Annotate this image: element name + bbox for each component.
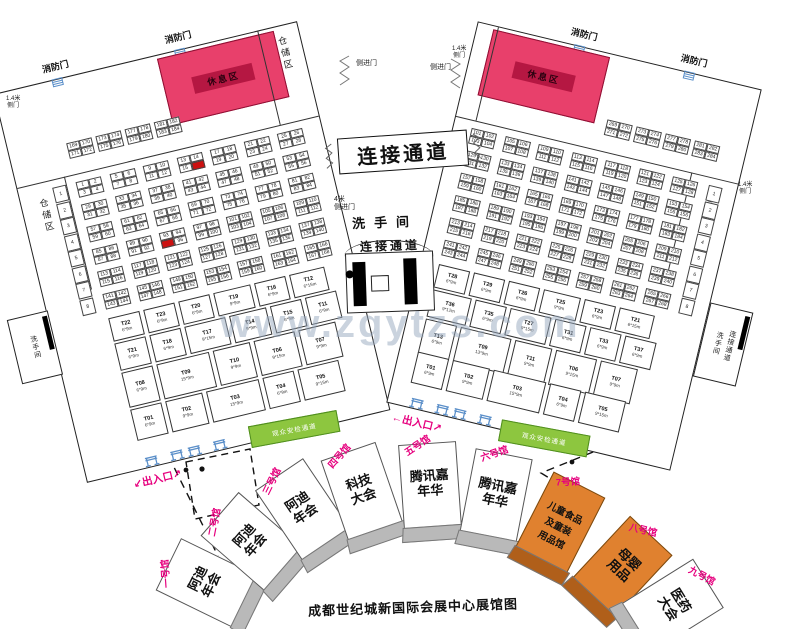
booth-cell: 36 xyxy=(129,198,144,209)
booth-cell: 96 xyxy=(173,235,188,246)
t-booth-size: 6*9m xyxy=(319,307,331,315)
fan-hall-number: 四号馆 xyxy=(324,440,353,471)
booth-cell: 200 xyxy=(565,230,580,241)
booth-cluster: 65666768 xyxy=(153,205,182,227)
entrance-gate-icon xyxy=(211,435,227,450)
booth-cell: 260 xyxy=(588,283,603,294)
accordion-door-icon xyxy=(324,143,335,172)
booth-cluster: 193194195196 xyxy=(519,211,548,233)
entrance-gate-icon xyxy=(186,441,202,456)
booth-cluster: 237238239240 xyxy=(648,266,677,288)
booth-cell: 104 xyxy=(240,219,255,230)
fan-hall-name: 腾讯嘉 年华 xyxy=(466,473,527,513)
booth-cell: 52 xyxy=(263,166,278,177)
booth-cell: 112 xyxy=(307,203,322,214)
booth-cluster: 81828384 xyxy=(288,173,317,195)
booth-cluster: 57585960 xyxy=(86,221,115,243)
booth-cluster: 149150151152 xyxy=(630,191,659,213)
annex-label: 洗手间 xyxy=(27,334,42,360)
page-title: 成都世纪城新国际会展中心展馆图 xyxy=(308,593,519,619)
booth-cell: 180 xyxy=(139,131,154,142)
booth-cell: 44 xyxy=(196,182,211,193)
rest-area: 休息区 xyxy=(478,29,611,123)
side-door-note: 1.4米 侧门 xyxy=(738,182,752,195)
booth-cell: 60 xyxy=(101,229,116,240)
booth-cell: 84 xyxy=(302,180,317,191)
booth-cluster: 177178179180 xyxy=(125,123,154,145)
booth-cluster: 21222324 xyxy=(243,136,272,158)
booth-cell: 160 xyxy=(470,183,485,194)
booth-cell: 32 xyxy=(95,206,110,217)
booth-cell: 128 xyxy=(212,249,227,260)
booth-cell: 100 xyxy=(207,227,222,238)
booth-cluster: 29303132 xyxy=(81,199,110,221)
booth-cell: 124 xyxy=(179,257,194,268)
booth-cluster: 109110111112 xyxy=(535,144,564,166)
fan-hall-number: 二号馆 xyxy=(204,507,223,538)
booth-cell: 108 xyxy=(514,147,529,158)
booth-cell: 80 xyxy=(268,188,283,199)
booth-cluster: 181182183184 xyxy=(659,221,688,243)
booth-cell: 8 xyxy=(678,297,695,316)
corridor-banner-label: 连接通道 xyxy=(356,134,450,169)
booth-cluster: 117118119120 xyxy=(602,160,631,182)
entrance-gate-icon xyxy=(477,411,493,426)
booth-cluster: 169170171172 xyxy=(558,197,587,219)
fan-hall-name: 阿迪 年会 xyxy=(179,550,231,613)
booth-cluster: 121122123124 xyxy=(636,168,665,190)
booth-cluster: 141142143144 xyxy=(563,174,592,196)
booth-cluster: 121122123124 xyxy=(164,250,193,272)
fan-hall-segment: 五号馆腾讯嘉 年华 xyxy=(398,441,462,531)
booth-cell: 204 xyxy=(599,238,614,249)
t-booth: T016*9m xyxy=(411,352,450,391)
booth-cell: 68 xyxy=(168,213,183,224)
rest-area-label: 休息区 xyxy=(512,61,575,92)
booth-cell: 128 xyxy=(682,187,697,198)
t-booth-size: 6*9m xyxy=(144,421,156,429)
hall-left: 消防门消防门仓储区仓储区休息区1234567891011121314151617… xyxy=(0,21,390,483)
booth-cell: 240 xyxy=(660,276,675,287)
t-booth: T059*15m xyxy=(297,360,345,401)
t-booth: T069*15m xyxy=(254,331,303,376)
booth-cluster: 133134135136 xyxy=(496,158,525,180)
booth-cluster: 257258259260 xyxy=(575,272,604,294)
booth-cluster: 173174175176 xyxy=(591,205,620,227)
corridor-width-note: 4米 侧进门 xyxy=(334,196,355,211)
fan-hall-segment: 六号馆腾讯嘉 年华 xyxy=(459,448,532,543)
t-booth-size: 6*9m xyxy=(561,335,573,343)
booth-cluster: 277278279280 xyxy=(662,133,691,155)
booth-cluster: 113114115116 xyxy=(97,266,126,288)
fire-door-icon xyxy=(50,73,64,85)
booth-cluster: 241242243244 xyxy=(441,240,470,262)
wall-block xyxy=(737,316,750,350)
booth-cluster: 137138139140 xyxy=(298,217,327,239)
t-booth-size: 6*9m xyxy=(482,316,494,324)
entrance-gate-icon xyxy=(409,394,425,409)
booth-cell: 208 xyxy=(632,246,647,257)
booth-cell: 164 xyxy=(503,191,518,202)
booth-cell: 48 xyxy=(230,174,245,185)
t-booth-size: 6*9m xyxy=(423,370,435,378)
booth-cell: 176 xyxy=(110,138,125,149)
t-booth-size: 6*9m xyxy=(128,353,140,361)
t-booth: T116*9m xyxy=(305,290,343,325)
booth-cluster: 165166167168 xyxy=(304,240,333,262)
booth-cell: 216 xyxy=(459,228,474,239)
booth-cell: 224 xyxy=(526,244,541,255)
booth-cell: 248 xyxy=(487,259,502,270)
booth-cluster: 281282283284 xyxy=(691,140,720,162)
booth-cluster: 265266267268 xyxy=(642,288,671,310)
t-booth-size: 6*9m xyxy=(515,295,527,303)
booth-cluster: 169170171172 xyxy=(66,137,95,159)
booth-cell: 132 xyxy=(246,241,261,252)
booth-cell: 188 xyxy=(465,206,480,217)
booth-cluster: 17181920 xyxy=(210,144,239,166)
wall-block xyxy=(403,258,418,304)
booth-cell: 56 xyxy=(297,158,312,169)
t-booth-size: 6*9m xyxy=(480,287,492,295)
booth-cell: 40 xyxy=(162,190,177,201)
booth-cell: 168 xyxy=(318,247,333,258)
booth-cluster: 33343536 xyxy=(114,191,143,213)
booth-cell: 220 xyxy=(493,236,508,247)
booth-cell: 88 xyxy=(106,251,121,262)
booth-cluster: 137138139140 xyxy=(530,166,559,188)
fan-segment-side xyxy=(609,602,655,629)
booth-cell: 120 xyxy=(145,265,160,276)
hall-right: 消防门消防门仓储区仓储区休息区1011021031041051061071081… xyxy=(386,21,761,470)
fan-hall-name: 阿迪 年会 xyxy=(270,479,333,535)
side-entry-label: 侧进门 xyxy=(356,60,377,68)
t-booth: T029*9m xyxy=(165,393,209,433)
booth-cluster: 145146147148 xyxy=(136,280,165,302)
booth-cluster: 101102103104 xyxy=(226,211,255,233)
t-booth: T046*9m xyxy=(262,371,301,410)
booth-cluster: 145146147148 xyxy=(597,182,626,204)
booth-cell: 140 xyxy=(542,177,557,188)
t-booth-size: 6*9m xyxy=(445,278,457,286)
entrance-gate-icon xyxy=(168,446,184,461)
accordion-door-icon xyxy=(338,55,352,89)
booth-cell: 256 xyxy=(554,275,569,286)
booth-cluster: 109110111112 xyxy=(293,195,322,217)
booth-cluster: 1234 xyxy=(76,176,105,198)
security-channel-banner: 观众安检通道 xyxy=(498,419,591,457)
booth-cell: 284 xyxy=(704,151,719,162)
fan-segment-side xyxy=(346,519,408,554)
booth-cell: 4 xyxy=(90,184,105,195)
booth-cluster: 77787980 xyxy=(254,181,283,203)
booth-cell: 280 xyxy=(675,144,690,155)
booth-cell: 20 xyxy=(224,152,239,163)
booth-cluster: 253254255256 xyxy=(542,264,571,286)
corridor-structure xyxy=(345,250,435,313)
fan-hall-number: 九号馆 xyxy=(686,562,718,588)
booth-cluster: 261262263264 xyxy=(609,280,638,302)
booth-cluster: 85868788 xyxy=(92,243,121,265)
booth-cell: 156 xyxy=(217,272,232,283)
booth-cell: 132 xyxy=(475,161,490,172)
entrance-gate-icon xyxy=(434,400,450,415)
t-booth-size: 9*9m xyxy=(553,304,565,312)
booth-cluster: 205206207208 xyxy=(620,235,649,257)
booth-cluster: 229230231232 xyxy=(581,250,610,272)
fan-segment-side xyxy=(561,576,618,628)
booth-cell: 172 xyxy=(81,145,96,156)
booth-cell: 268 xyxy=(655,299,670,310)
booth-cell: 76 xyxy=(235,196,250,207)
t-booth: T296*9m xyxy=(468,272,505,303)
booth-cluster: 93949596 xyxy=(159,227,188,249)
fan-hall-name: 腾讯嘉 年华 xyxy=(401,466,459,500)
booth-cell: 116 xyxy=(111,273,126,284)
fan-hall-name: 母婴 用品 xyxy=(593,535,654,595)
booth-cluster: 13141516 xyxy=(176,152,205,174)
booth-cluster: 105106107108 xyxy=(502,136,531,158)
restroom-annex: 洗手间 xyxy=(7,310,63,384)
booth-cluster: 221222223224 xyxy=(514,233,543,255)
booth-cell: 116 xyxy=(581,163,596,174)
booth-cell: 196 xyxy=(532,222,547,233)
booth-cell: 12 xyxy=(157,168,172,179)
booth-cluster: 41424344 xyxy=(182,174,211,196)
t-booth-size: 6*9m xyxy=(121,325,133,333)
booth-cluster: 165166167168 xyxy=(524,189,553,211)
booth-cell: 264 xyxy=(622,291,637,302)
booth-cluster: 181182183184 xyxy=(154,116,183,138)
booth-cell: 180 xyxy=(638,224,653,235)
fan-hall-number: 7号馆 xyxy=(555,473,580,488)
booth-cell: 152 xyxy=(643,201,658,212)
t-booth-size: 9*9m xyxy=(523,361,535,369)
booth-cell: 136 xyxy=(279,233,294,244)
booth-cell: 112 xyxy=(548,155,563,166)
booth-cluster: 173174175176 xyxy=(95,130,124,152)
side-entry-label: 侧进门 xyxy=(430,64,451,72)
fan-hall-name: 医药 大会 xyxy=(647,573,702,629)
booth-cell: 72 xyxy=(201,205,216,216)
wall-notch xyxy=(371,275,390,292)
t-booth-size: 6*9m xyxy=(163,344,175,352)
entrance-gate-icon xyxy=(143,452,159,467)
booth-cluster: 225226227228 xyxy=(547,241,576,263)
t-booth-size: 6*9m xyxy=(631,352,643,360)
booth-cluster: 113114115116 xyxy=(569,152,598,174)
booth-cell: 192 xyxy=(498,214,513,225)
booth-cluster: 105106107108 xyxy=(259,203,288,225)
booth-cell: 164 xyxy=(285,256,300,267)
booth-cluster: 217218219220 xyxy=(480,225,509,247)
booth-cluster: 189190191192 xyxy=(485,203,514,225)
booth-cell: 8 xyxy=(124,176,139,187)
booth-cell: 144 xyxy=(576,185,591,196)
wall-block xyxy=(42,316,55,350)
booth-cluster: 149150151152 xyxy=(169,272,198,294)
t-booth-size: 6*9m xyxy=(431,339,443,347)
booth-cluster: 201202203204 xyxy=(586,227,615,249)
t-booth-size: 9*9m xyxy=(230,363,242,371)
booth-cluster: 141142143144 xyxy=(102,288,131,310)
booth-cell: 24 xyxy=(258,144,273,155)
t-booth-size: 6*9m xyxy=(556,402,568,410)
booth-cell: 244 xyxy=(454,251,469,262)
fan-hall-name: 儿童食品 及童装 用品馆 xyxy=(523,494,593,560)
t-booth: T109*9m xyxy=(213,342,258,386)
booth-cluster: 153154155156 xyxy=(664,199,693,221)
t-booth-size: 6*9m xyxy=(591,313,603,321)
booth-cluster: 209210211212 xyxy=(653,243,682,265)
booth-cluster: 9101112 xyxy=(143,160,172,182)
booth-cluster: 197198199200 xyxy=(553,219,582,241)
t-booth-size: 9*9m xyxy=(229,299,241,307)
booth-cell: 236 xyxy=(627,268,642,279)
t-booth: T336*9m xyxy=(584,327,622,362)
floor-plan: 消防门消防门仓储区仓储区休息区1234567891011121314151617… xyxy=(0,0,800,629)
fan-hall-number: 八号馆 xyxy=(628,519,659,539)
booth-cell: 140 xyxy=(313,225,328,236)
booth-cell: 28 xyxy=(291,136,306,147)
booth-cell: 176 xyxy=(604,216,619,227)
booth-cell: 64 xyxy=(134,221,149,232)
t-booth-size: 6*9m xyxy=(191,309,203,317)
booth-cell: 148 xyxy=(150,288,165,299)
t-booth-size: 6*9m xyxy=(277,389,289,397)
booth-cluster: 161162163164 xyxy=(491,181,520,203)
booth-cell: 120 xyxy=(615,171,630,182)
booth-cell: 232 xyxy=(593,260,608,271)
restroom-annex: 洗手间连接通道 xyxy=(693,302,754,386)
booth-cluster: 177178179180 xyxy=(625,213,654,235)
booth-cluster: 979899100 xyxy=(192,219,221,241)
t-booth-size: 6*9m xyxy=(136,386,148,394)
booth-cell: 212 xyxy=(666,254,681,265)
booth-cluster: 273274275276 xyxy=(633,126,662,148)
booth-cluster: 269270271272 xyxy=(604,119,633,141)
booth-cell: 168 xyxy=(537,200,552,211)
booth-cluster: 49505152 xyxy=(249,158,278,180)
booth-cell: 16 xyxy=(191,160,206,171)
t-booth-size: 9*9m xyxy=(461,379,473,387)
booth-cell: 276 xyxy=(646,137,661,148)
t-booth: T079*9m xyxy=(298,321,343,365)
booth-cluster: 245246247248 xyxy=(475,248,504,270)
booth-cluster: 133134135136 xyxy=(265,225,294,247)
fire-door-icon xyxy=(683,66,697,78)
side-door-note: 1.4米 侧门 xyxy=(452,46,466,59)
booth-cluster: 25262728 xyxy=(277,128,306,150)
booth-cluster: 53545556 xyxy=(282,150,311,172)
t-booth-size: 9*9m xyxy=(246,324,258,332)
booth-cluster: 161162163164 xyxy=(270,248,299,270)
t-booth-size: 9*9m xyxy=(316,342,328,350)
fan-hall-number: 一号馆 xyxy=(157,559,173,588)
t-booth: T086*9m xyxy=(121,365,161,407)
t-booth-size: 6*9m xyxy=(267,290,279,298)
t-booth: T016*9m xyxy=(130,402,169,441)
t-booth: T376*9m xyxy=(619,336,657,371)
storage-area-label: 仓储区 xyxy=(37,197,58,235)
t-booth: T046*9m xyxy=(543,383,582,422)
booth-cluster: 73747576 xyxy=(220,189,249,211)
booth-cluster: 157158159160 xyxy=(237,256,266,278)
booth-cell: 172 xyxy=(571,208,586,219)
fan-hall-name: 科技 大会 xyxy=(330,466,393,513)
booth-cluster: 129130131132 xyxy=(231,233,260,255)
booth-cluster: 45464748 xyxy=(215,166,244,188)
booth-cell: 124 xyxy=(648,179,663,190)
t-booth: T356*9m xyxy=(469,300,507,335)
wall-block xyxy=(352,262,367,306)
side-door-note: 1.4米 侧门 xyxy=(6,96,20,109)
booth-cell: 184 xyxy=(168,124,183,135)
fan-hall-number: 六号馆 xyxy=(478,442,510,465)
booth-cluster: 157158159160 xyxy=(457,173,486,195)
t-booth-size: 9*9m xyxy=(609,381,621,389)
fan-hall-number: 三号馆 xyxy=(259,465,284,497)
booth-cluster: 233234235236 xyxy=(614,258,643,280)
booth-cluster: 125126127128 xyxy=(198,241,227,263)
booth-cell: 136 xyxy=(509,169,524,180)
booth-cell: 272 xyxy=(616,130,631,141)
rest-area-label: 休息区 xyxy=(192,63,255,94)
booth-cell: 108 xyxy=(274,211,289,222)
booth-cluster: 61626364 xyxy=(120,213,149,235)
booth-cell: 92 xyxy=(140,243,155,254)
booth-cluster: 69707172 xyxy=(187,197,216,219)
booth-cluster: 89909192 xyxy=(125,235,154,257)
booth-cluster: 185186187188 xyxy=(452,195,481,217)
booth-cell: 148 xyxy=(609,193,624,204)
booth-cluster: 117118119120 xyxy=(131,258,160,280)
booth-cell: 184 xyxy=(671,232,686,243)
t-booth: T266*9m xyxy=(503,281,540,312)
booth-cell: 104 xyxy=(481,139,496,150)
accordion-door-icon xyxy=(471,133,482,162)
booth-cell: 252 xyxy=(521,267,536,278)
security-channel-banner: 观众安检通道 xyxy=(248,410,341,448)
booth-cluster: 5678 xyxy=(109,168,138,190)
restroom-label: 洗手间 xyxy=(352,211,419,232)
t-booth-size: 6*9m xyxy=(156,317,168,325)
booth-cell: 160 xyxy=(251,264,266,275)
booth-cluster: 213214215216 xyxy=(447,217,476,239)
t-booth-size: 9*9m xyxy=(182,412,194,420)
booth-cell: 156 xyxy=(677,209,692,220)
exit-entrance-label: ↙出入口↗ xyxy=(132,466,183,492)
booth-cluster: 153154155156 xyxy=(203,264,232,286)
entrance-gate-icon xyxy=(452,405,468,420)
booth-cell: 144 xyxy=(117,296,132,307)
booth-cluster: 125126127128 xyxy=(669,176,698,198)
booth-cluster: 37383940 xyxy=(148,182,177,204)
t-booth: T316*9m xyxy=(549,319,587,354)
booth-cell: 8 xyxy=(79,297,96,316)
booth-cluster: 249250251252 xyxy=(508,256,537,278)
booth-cell: 152 xyxy=(184,280,199,291)
t-booth-size: 6*9m xyxy=(284,315,296,323)
booth-cell: 228 xyxy=(560,252,575,263)
t-booth-size: 6*9m xyxy=(596,343,608,351)
fan-hall-number: 五号馆 xyxy=(401,431,432,459)
